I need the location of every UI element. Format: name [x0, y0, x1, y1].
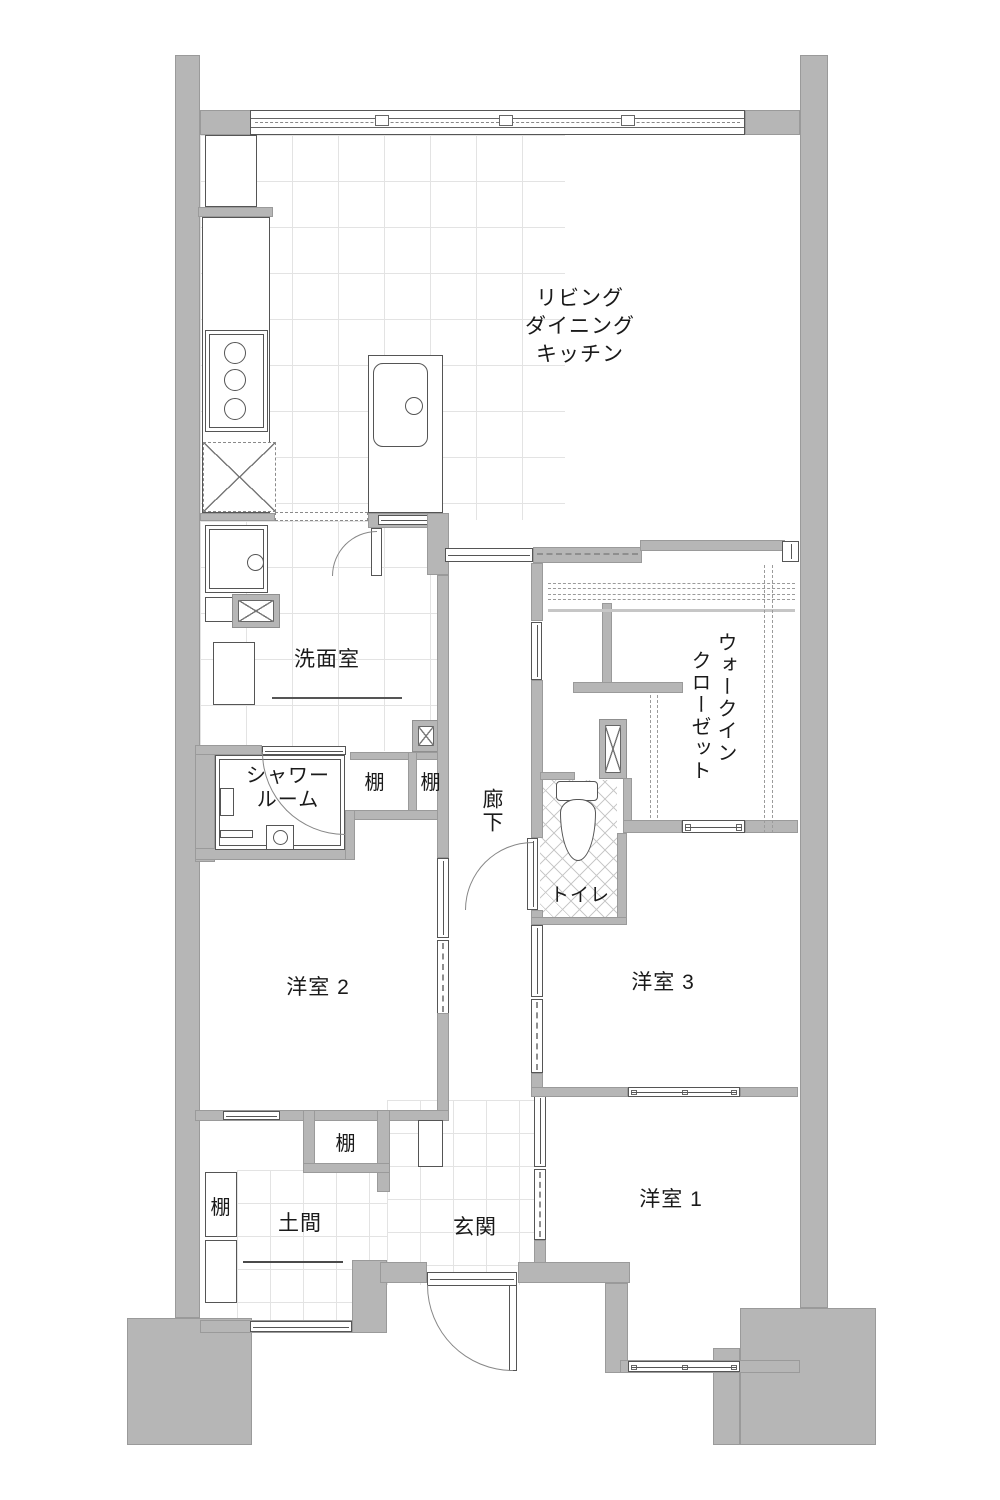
wall-kitchen-counter-stub [198, 207, 273, 217]
pipe-shaft-washroom [233, 595, 279, 627]
window-top-mullion-3 [621, 115, 635, 126]
shower-drain-box [266, 825, 294, 850]
room2-door-pocket-dash [442, 943, 444, 1012]
room3-window-cap-left [631, 1090, 637, 1095]
room3-door-pocket-dash [536, 1002, 538, 1070]
label-room2: 洋室 2 [258, 974, 378, 1002]
room1-window-cap-right [731, 1365, 737, 1370]
label-toilet: トイレ [540, 882, 620, 910]
label-shelf-c: 棚 [326, 1130, 366, 1158]
label-room3: 洋室 3 [603, 969, 723, 997]
room1-bottom-window [628, 1361, 740, 1372]
label-shower-line1: シャワー [246, 765, 330, 787]
doma-bottom-window [250, 1321, 352, 1332]
wall-corridor-left [437, 575, 449, 858]
genkan-hall-sliding-door-leaf [534, 1095, 546, 1167]
wic-hanger-rod-top-2 [548, 594, 795, 600]
room3-bottom-window [628, 1087, 740, 1097]
label-ldk: リビング ダイニング キッチン [500, 285, 660, 369]
genkan-floor-tiles [387, 1100, 534, 1285]
label-ldk-line2: ダイニング [525, 315, 635, 338]
wic-hanger-rod-closet [650, 695, 658, 818]
floor-plan: リビング ダイニング キッチン 洗面室 シャワー ルーム 棚 棚 廊下 ウォーク… [0, 0, 1000, 1500]
washer-drain [247, 554, 264, 571]
kitchen-counter-top-left [205, 135, 257, 207]
corridor-sliding-door-leaf [445, 548, 533, 562]
wall-corridor-left-lower [437, 1013, 449, 1120]
entrance-door-frame [427, 1272, 517, 1286]
wall-corridor-top-pocket [533, 547, 642, 563]
wall-right-top-jog [745, 110, 800, 135]
island-bottom-slot [378, 515, 430, 525]
label-shelf-a: 棚 [355, 769, 395, 797]
stove-burner-3 [224, 398, 246, 420]
label-ldk-line1: リビング [536, 287, 624, 310]
window-top-mullion-1 [375, 115, 389, 126]
label-room1: 洋室 1 [611, 1186, 731, 1214]
genkan-hall-door-pocket [534, 1169, 546, 1240]
wic-shelf-edge-line [548, 609, 795, 612]
room1-window-cap-left [631, 1365, 637, 1370]
wic-hanger-rod-right [764, 565, 773, 833]
vanity-counter-line [272, 697, 402, 699]
window-top-glass-line-upper [251, 118, 744, 119]
entrance-door-swing-arc [427, 1285, 513, 1371]
wall-corridor-right-upper [531, 563, 543, 621]
pillar-bottom-left [127, 1318, 252, 1445]
stove-burner-2 [224, 369, 246, 391]
sink-faucet [405, 397, 423, 415]
wic-right-window-slot [782, 541, 799, 562]
wall-corridor-top-left-chunk [427, 513, 449, 575]
wall-closet-bottom [303, 1163, 390, 1173]
label-shelf-d: 棚 [201, 1194, 241, 1222]
room3-window-cap-right [731, 1090, 737, 1095]
label-shower-line2: ルーム [257, 789, 319, 811]
label-wic-line2: クローゼット [686, 650, 712, 782]
wall-toilet-top-stub [540, 772, 575, 780]
wall-below-fridge [200, 513, 275, 521]
pillar-bottom-right [740, 1308, 876, 1445]
wic-door-leaf [531, 622, 542, 680]
pipe-shaft-corridor [413, 721, 439, 751]
label-washroom: 洗面室 [267, 646, 387, 674]
wall-left-top-jog [200, 110, 252, 135]
wall-shelf-corner [345, 810, 355, 860]
stove-burner-1 [224, 342, 246, 364]
wic-room3-door-cap-right [736, 824, 742, 831]
shoe-cabinet [418, 1120, 443, 1167]
room3-door-pocket [531, 999, 543, 1073]
shower-drain-circle [273, 830, 288, 845]
wall-closet-right [377, 1110, 390, 1192]
wall-ldk-wic-band [640, 540, 785, 551]
washroom-cabinet-small [205, 597, 233, 622]
washing-machine-pan [205, 525, 268, 593]
label-shelf-b: 棚 [411, 769, 451, 797]
vanity-unit [213, 642, 255, 705]
window-top-track-dashed [255, 122, 740, 123]
label-genkan: 玄関 [435, 1214, 515, 1242]
room2-bottom-window [223, 1111, 280, 1120]
pipe-shaft-wic [600, 720, 626, 778]
window-top-glass-line-lower [251, 127, 744, 128]
room3-window-cap-center [682, 1090, 688, 1095]
wall-corridor-right-mid [531, 680, 543, 838]
wic-hanger-rod-top-1 [548, 583, 795, 589]
doma-shelf-lower [205, 1240, 237, 1303]
label-doma: 土間 [260, 1210, 340, 1238]
window-top-mullion-2 [499, 115, 513, 126]
window-top-facade [250, 110, 745, 135]
wall-shower-left [195, 745, 215, 862]
room2-sliding-door-leaf [437, 858, 449, 938]
wall-wic-bottom-left [623, 820, 682, 833]
wall-entrance-right [518, 1262, 630, 1283]
refrigerator-space [203, 442, 276, 512]
room1-window-cap-center [682, 1365, 688, 1370]
wall-shelf-top [350, 752, 449, 760]
wall-right-exterior [800, 55, 828, 1308]
label-corridor: 廊下 [478, 788, 504, 834]
toilet-door-swing-arc [465, 842, 533, 910]
label-shower-room: シャワー ルーム [228, 764, 348, 812]
wall-entrance-left [380, 1262, 427, 1283]
wall-toilet-right [617, 833, 627, 925]
label-wic-line1: ウォークイン [712, 632, 738, 764]
wall-room3-bottom-left [531, 1087, 628, 1097]
shower-grab-bar [220, 830, 253, 838]
wall-genkan-right-stub [534, 1240, 546, 1264]
wall-room3-bottom-right [740, 1087, 798, 1097]
wall-shower-top-stub [195, 745, 262, 755]
label-ldk-line3: キッチン [536, 343, 624, 366]
room3-sliding-door-leaf [531, 925, 543, 997]
genkan-hall-door-pocket-dash [539, 1172, 541, 1237]
stove [205, 330, 268, 432]
kitchen-pass-threshold-dashed [275, 512, 368, 521]
wic-room3-door-cap-left [685, 824, 691, 831]
wic-room3-door [682, 820, 745, 833]
wall-left-exterior [175, 55, 200, 1318]
wall-wic-internal-vertical [602, 603, 612, 693]
toilet-tank [556, 781, 598, 801]
corridor-top-pocket-dash [537, 553, 638, 555]
doma-step-line [243, 1261, 343, 1263]
wall-wic-partition [573, 682, 683, 693]
wall-toilet-bottom [531, 917, 627, 925]
room2-door-pocket [437, 940, 449, 1015]
wall-shelf-bottom [350, 810, 449, 820]
